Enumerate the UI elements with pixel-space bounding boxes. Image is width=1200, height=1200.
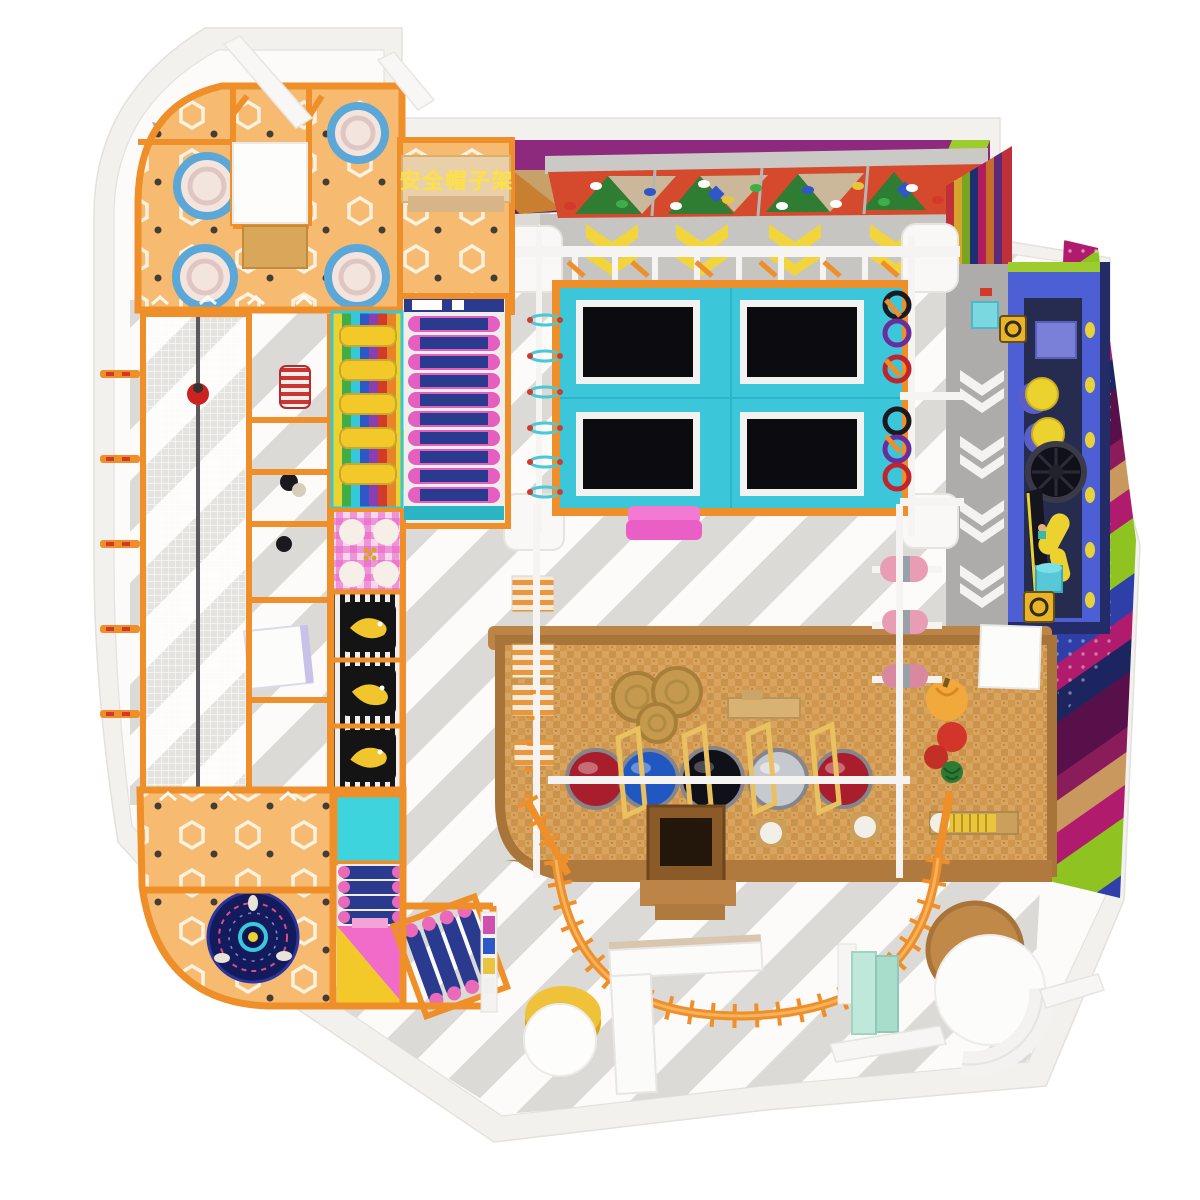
spinner-disc (208, 892, 298, 982)
roller-slide (398, 296, 508, 526)
rainbow-climber (332, 312, 402, 508)
gingham-pod (332, 510, 402, 592)
book-shelf-strip (481, 912, 497, 1012)
yellow-pad (1026, 378, 1058, 410)
top-left-structure (138, 86, 402, 310)
slide-exit-bar (404, 506, 504, 520)
bottom-wood-edge (505, 860, 1052, 882)
coin-block (1000, 316, 1026, 342)
white-notch-box (979, 625, 1041, 689)
floorplan-canvas: 安全帽子架 (0, 0, 1200, 1200)
mat-cell (340, 730, 396, 782)
wood-crate (243, 226, 307, 268)
mud-pit (640, 806, 736, 920)
cyan-platform (335, 795, 403, 863)
helmet-shelf-zone: 安全帽子架 (400, 140, 515, 312)
mat-cell (340, 602, 396, 652)
red-marker (980, 288, 992, 296)
toy-figure (1038, 524, 1046, 532)
climbing-wall (548, 164, 986, 218)
mat-cell (340, 666, 396, 716)
blue-ninja-platform (1000, 262, 1110, 634)
coin-block (1024, 592, 1054, 622)
left-lanes (100, 312, 403, 792)
area-pole-right (896, 504, 903, 878)
roller-steps (338, 864, 404, 926)
purple-box (1036, 322, 1076, 358)
obstacle-mats (332, 592, 402, 790)
platform-box (233, 143, 307, 223)
helmet-shelf-label: 安全帽子架 (400, 169, 515, 193)
punch-cylinder (280, 366, 310, 408)
teal-box (972, 302, 998, 328)
playground-floorplan-render: 安全帽子架 (0, 0, 1200, 1200)
right-net-post (908, 236, 915, 536)
cross-pole (548, 776, 910, 784)
